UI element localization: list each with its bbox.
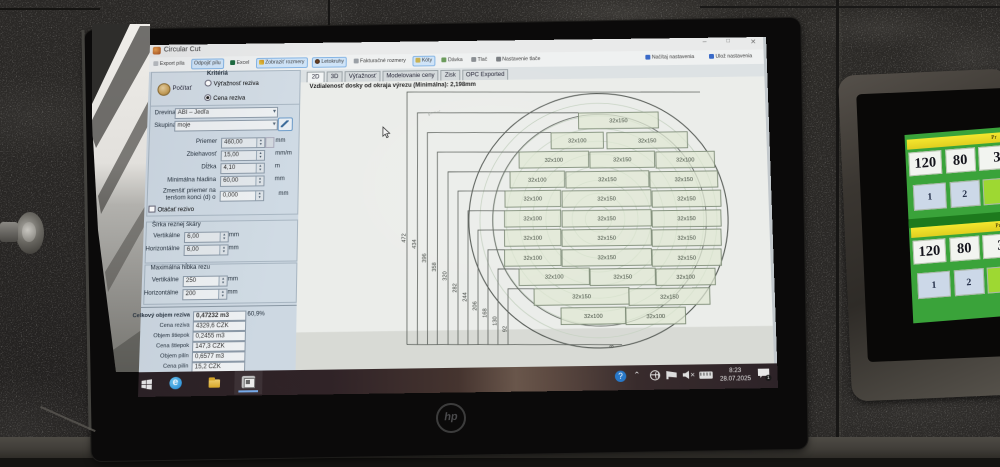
svg-text:32x150: 32x150 (677, 255, 696, 261)
svg-text:32x150: 32x150 (613, 157, 632, 163)
svg-text:206: 206 (472, 301, 478, 311)
svg-text:32x100: 32x100 (528, 177, 547, 183)
svg-text:32x150: 32x150 (613, 275, 632, 281)
svg-text:472: 472 (401, 233, 407, 242)
svg-text:434: 434 (412, 239, 418, 248)
svg-text:32x100: 32x100 (676, 157, 695, 163)
svg-text:32x150: 32x150 (598, 177, 617, 183)
svg-text:32x150: 32x150 (597, 255, 616, 261)
svg-text:32x100: 32x100 (545, 157, 563, 163)
svg-text:32x100: 32x100 (646, 314, 665, 321)
svg-text:130: 130 (492, 316, 498, 326)
svg-text:32x100: 32x100 (523, 236, 542, 242)
svg-text:32x100: 32x100 (676, 275, 695, 281)
svg-text:32x150: 32x150 (572, 294, 591, 300)
svg-text:32x100: 32x100 (545, 275, 564, 281)
svg-text:396: 396 (422, 253, 428, 262)
svg-text:8: 8 (609, 345, 615, 348)
svg-text:32x150: 32x150 (597, 216, 616, 222)
svg-text:32x100: 32x100 (523, 255, 542, 261)
svg-text:282: 282 (452, 283, 458, 292)
svg-text:358: 358 (432, 262, 438, 271)
svg-text:32x150: 32x150 (609, 118, 627, 124)
svg-text:32x100: 32x100 (568, 138, 586, 144)
svg-text:32x100: 32x100 (524, 197, 543, 203)
svg-text:32x150: 32x150 (677, 235, 696, 241)
svg-text:32x150: 32x150 (675, 177, 694, 183)
svg-text:32x150: 32x150 (597, 196, 616, 202)
svg-text:32x150: 32x150 (677, 196, 696, 202)
svg-text:32x150: 32x150 (597, 235, 616, 241)
svg-text:32x150: 32x150 (677, 216, 696, 222)
svg-text:168: 168 (482, 308, 488, 318)
svg-text:32x150: 32x150 (660, 294, 679, 300)
svg-text:92: 92 (502, 326, 508, 332)
svg-text:32x100: 32x100 (523, 216, 542, 222)
svg-text:32x100: 32x100 (584, 314, 603, 321)
svg-text:320: 320 (442, 271, 448, 280)
svg-text:244: 244 (462, 292, 468, 301)
svg-text:32x150: 32x150 (638, 138, 656, 144)
